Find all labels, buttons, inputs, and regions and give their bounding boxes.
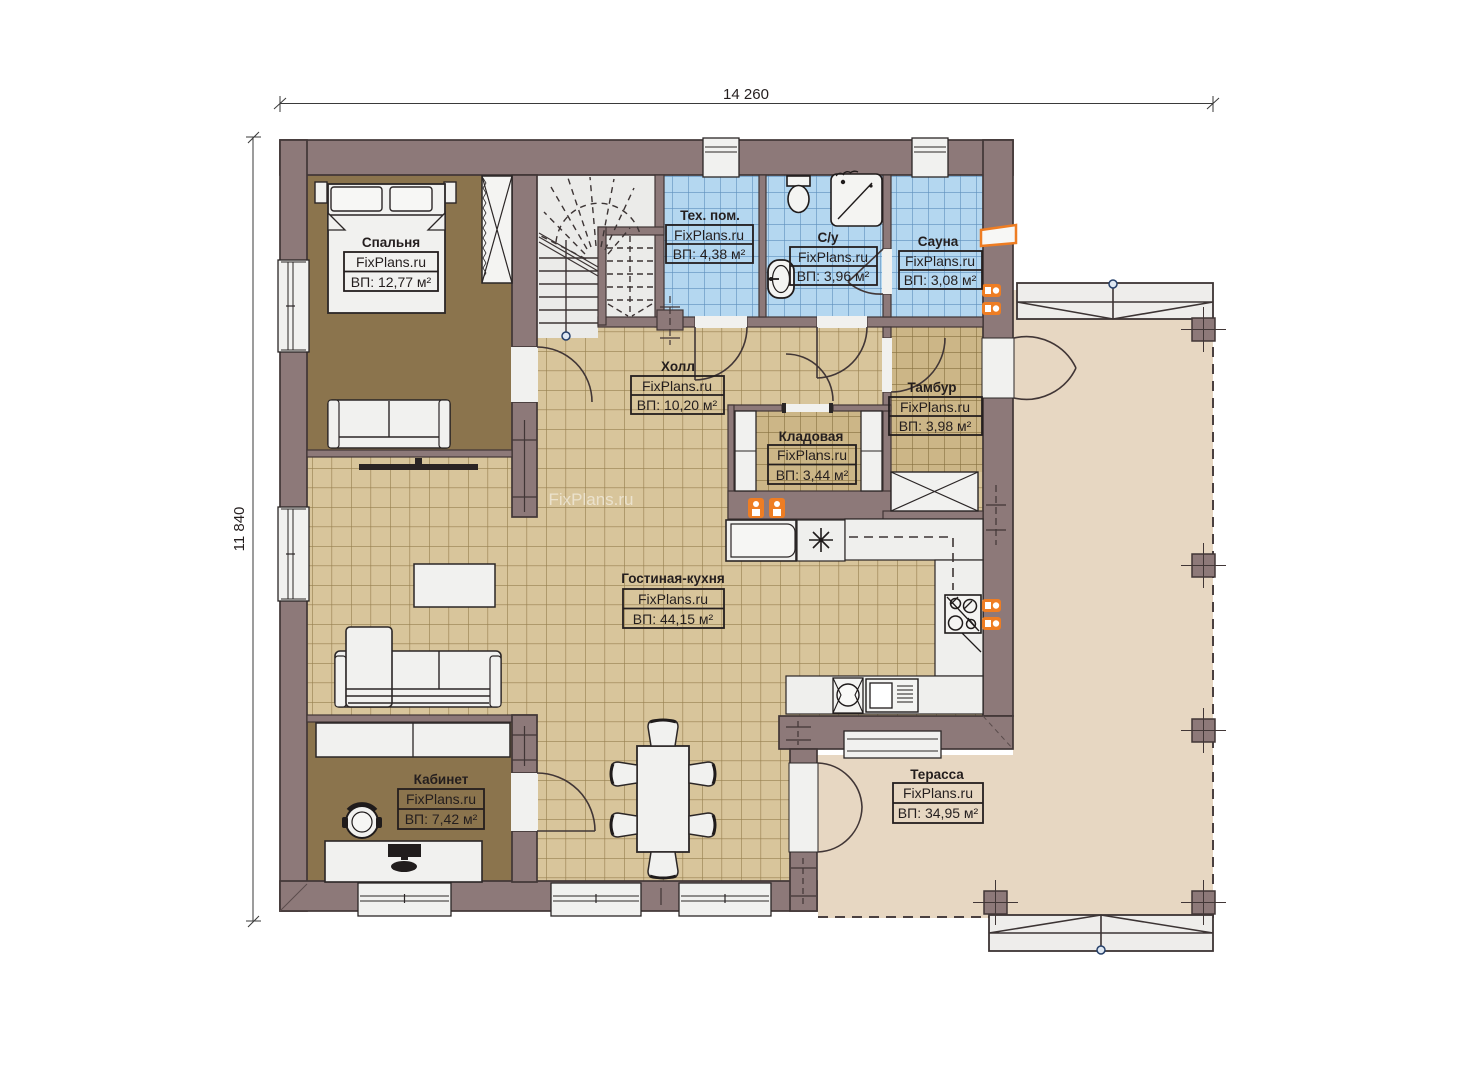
svg-text:ВП: 3,96 м²: ВП: 3,96 м²	[797, 268, 870, 284]
svg-text:Гостиная-кухня: Гостиная-кухня	[621, 571, 724, 586]
svg-text:FixPlans.ru: FixPlans.ru	[674, 227, 744, 243]
svg-text:ВП: 44,15 м²: ВП: 44,15 м²	[633, 611, 714, 627]
svg-text:Сауна: Сауна	[918, 234, 959, 249]
svg-text:ВП: 34,95 м²: ВП: 34,95 м²	[898, 805, 979, 821]
svg-text:ВП: 7,42 м²: ВП: 7,42 м²	[405, 811, 478, 827]
svg-text:ВП: 3,98 м²: ВП: 3,98 м²	[899, 418, 972, 434]
svg-text:FixPlans.ru: FixPlans.ru	[905, 253, 975, 269]
svg-text:С/у: С/у	[817, 230, 839, 245]
svg-text:FixPlans.ru: FixPlans.ru	[777, 447, 847, 463]
svg-text:FixPlans.ru: FixPlans.ru	[900, 399, 970, 415]
svg-text:Тех. пом.: Тех. пом.	[680, 208, 740, 223]
svg-text:11 840: 11 840	[231, 507, 248, 552]
svg-text:ВП: 10,20 м²: ВП: 10,20 м²	[637, 397, 718, 413]
svg-text:14 260: 14 260	[723, 86, 769, 103]
svg-text:FixPlans.ru: FixPlans.ru	[642, 378, 712, 394]
svg-text:FixPlans.ru: FixPlans.ru	[638, 591, 708, 607]
svg-text:ВП: 3,44 м²: ВП: 3,44 м²	[776, 467, 849, 483]
svg-text:Терасса: Терасса	[910, 767, 964, 782]
svg-text:ВП: 3,08 м²: ВП: 3,08 м²	[904, 272, 977, 288]
svg-text:FixPlans.ru: FixPlans.ru	[548, 490, 633, 509]
svg-text:ВП: 12,77 м²: ВП: 12,77 м²	[351, 274, 432, 290]
svg-text:Тамбур: Тамбур	[908, 380, 957, 395]
svg-text:Кладовая: Кладовая	[779, 429, 844, 444]
svg-text:FixPlans.ru: FixPlans.ru	[903, 785, 973, 801]
svg-text:Холл: Холл	[661, 359, 695, 374]
svg-text:FixPlans.ru: FixPlans.ru	[406, 791, 476, 807]
svg-text:FixPlans.ru: FixPlans.ru	[798, 249, 868, 265]
svg-text:Спальня: Спальня	[362, 235, 420, 250]
svg-text:Кабинет: Кабинет	[414, 772, 469, 787]
svg-text:FixPlans.ru: FixPlans.ru	[356, 254, 426, 270]
svg-text:ВП: 4,38 м²: ВП: 4,38 м²	[673, 246, 746, 262]
